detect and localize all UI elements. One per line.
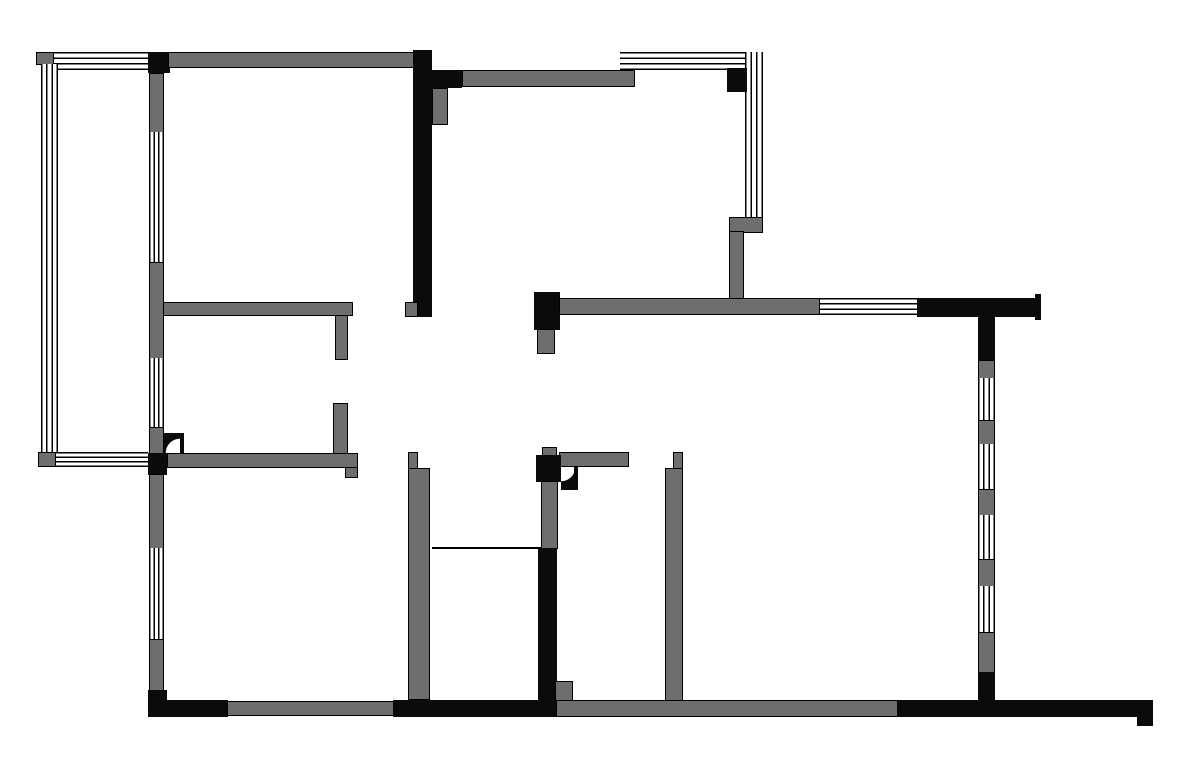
window-right-2 xyxy=(978,444,995,490)
door-arc-bedroom-left xyxy=(164,433,184,453)
door-arc-bath xyxy=(561,467,578,490)
wall-bottom-gray-left xyxy=(227,701,394,716)
pier-right-2 xyxy=(978,420,995,445)
pier-right-1 xyxy=(978,360,995,379)
wall-bottom-black-right xyxy=(897,700,1153,717)
window-living-east xyxy=(820,298,917,315)
wall-corridor-right-top-strip xyxy=(673,452,683,469)
window-left-lower xyxy=(149,548,164,640)
window-balcony-top xyxy=(54,52,148,70)
wall-black-kitchen-stub xyxy=(432,70,462,88)
wall-living-horizontal xyxy=(559,298,820,315)
corner-post-top-left xyxy=(148,52,170,73)
post-black-bath xyxy=(536,455,561,482)
wall-interior-lower-horizontal xyxy=(167,453,358,468)
window-left-mid xyxy=(149,358,164,428)
line-threshold xyxy=(432,547,541,549)
floor-plan xyxy=(0,0,1200,777)
wall-top-exterior xyxy=(168,52,414,68)
pier-right-3 xyxy=(978,489,995,516)
pier-kitchen-gray xyxy=(432,88,448,125)
pier-right-5 xyxy=(978,632,995,673)
stub-gray-below-post xyxy=(537,329,555,354)
stub-door-upper xyxy=(335,315,348,360)
post-black-living-wall xyxy=(534,292,560,330)
wall-bottom-black-left xyxy=(148,700,228,717)
wall-corridor-left xyxy=(408,468,430,700)
window-left-upper xyxy=(149,132,164,263)
post-black-bay-corner xyxy=(727,68,747,92)
notch-gray-bottom-center xyxy=(555,681,573,701)
step-interior-lower-wall xyxy=(345,467,358,478)
wall-bath-horizontal xyxy=(559,452,629,467)
wall-interior-upper-horizontal xyxy=(163,302,353,316)
wall-corridor-left-top-strip xyxy=(408,452,418,469)
stub-door-lower xyxy=(333,403,348,454)
door-jamb-left xyxy=(149,427,164,454)
step-black-bottom-right xyxy=(1137,717,1153,726)
wall-bottom-black-mid xyxy=(393,700,557,717)
wall-bay-bottom-narrow xyxy=(729,231,744,303)
window-right-1 xyxy=(978,378,995,421)
balcony-corner-gray-bottom-left xyxy=(38,452,56,467)
wall-bottom-gray-right xyxy=(556,700,898,717)
window-bay-right xyxy=(745,52,763,218)
window-right-3 xyxy=(978,515,995,560)
wall-kitchen-top xyxy=(462,70,635,87)
window-right-4 xyxy=(978,586,995,633)
wall-left-lower-1 xyxy=(149,474,164,549)
wall-left-upper-1 xyxy=(149,73,164,133)
wall-right-black-top xyxy=(978,298,995,360)
wall-corridor-right xyxy=(665,468,683,703)
window-balcony-left xyxy=(41,64,58,453)
wall-left-lower-2 xyxy=(149,639,164,691)
wall-bath-gray-vertical xyxy=(541,481,558,549)
window-balcony-bottom xyxy=(56,452,148,467)
wall-black-top-right xyxy=(917,298,1035,317)
notch-gray-center-bar-bottom xyxy=(405,302,418,317)
wall-left-mid xyxy=(149,262,164,359)
endcap-black-top-right xyxy=(1035,294,1041,320)
wall-vertical-black-center-top xyxy=(413,50,432,317)
pier-right-4 xyxy=(978,559,995,587)
post-black-left-wall xyxy=(148,453,167,475)
wall-bath-black-vertical xyxy=(538,548,557,700)
